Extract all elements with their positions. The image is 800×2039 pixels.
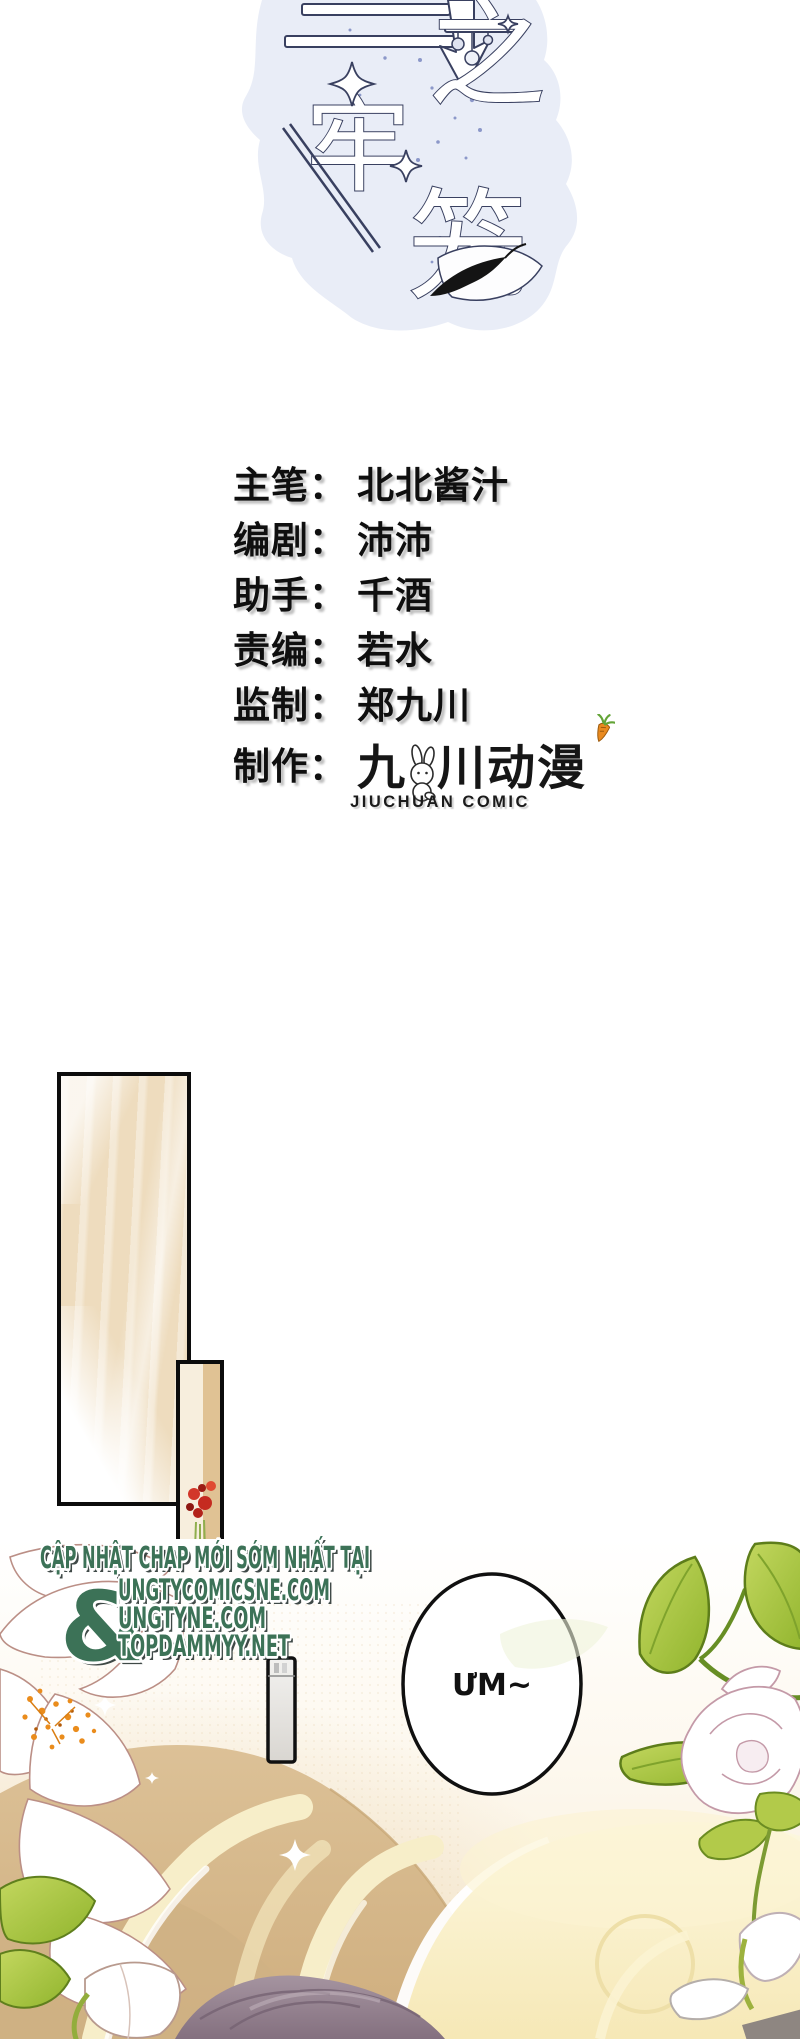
credit-row-assistant: 助手：千酒 <box>233 564 613 619</box>
credit-label: 编剧 <box>233 510 309 564</box>
credit-label: 主笔 <box>233 455 309 509</box>
credit-value: 北北酱汁 <box>357 455 509 509</box>
credit-colon: ： <box>309 620 347 674</box>
translator-watermark: CẬP NHẬT CHAP MỚI SỚM NHẤT TẠI & UNGTYCO… <box>14 1534 444 1684</box>
speech-bubble-text: ƯM~ <box>452 1668 532 1703</box>
comic-page: 之 牢 笼 主笔：北北酱汁 编剧：沛沛 助手：千酒 <box>0 0 800 2039</box>
studio-logo-latin: JIUCHUAN COMIC <box>330 793 550 812</box>
credit-colon: ： <box>309 510 347 564</box>
logo-cjk-mid: 川 <box>437 728 487 798</box>
credit-row-producer: 制作： 九 川 <box>233 731 613 795</box>
credit-label: 助手 <box>233 565 309 619</box>
credit-colon: ： <box>309 565 347 619</box>
credit-colon: ： <box>309 675 347 729</box>
credit-row-writer: 编剧：沛沛 <box>233 509 613 564</box>
credit-colon: ： <box>309 455 347 509</box>
credit-value: 郑九川 <box>357 675 471 729</box>
curtain-panel <box>57 1072 191 1506</box>
watermark-site-3: TOPDAMMYY.NET <box>118 1629 290 1663</box>
credit-row-supervisor: 监制：郑九川 <box>233 674 613 729</box>
credit-value: 若水 <box>357 620 433 674</box>
logo-cjk-right: 动漫 <box>487 728 587 798</box>
credit-value: 沛沛 <box>357 510 433 564</box>
credit-row-artist: 主笔：北北酱汁 <box>233 454 613 509</box>
credit-value: 千酒 <box>357 565 433 619</box>
title-calligraphy-art: 之 牢 笼 <box>0 0 800 340</box>
credits-block: 主笔：北北酱汁 编剧：沛沛 助手：千酒 责编：若水 监制：郑九川 制作： 九 <box>233 454 613 795</box>
logo-cjk-left: 九 <box>357 728 407 798</box>
credit-colon: ： <box>309 736 347 790</box>
carrot-icon <box>591 714 615 744</box>
red-flowers <box>186 1481 216 1518</box>
credit-label: 责编 <box>233 620 309 674</box>
watermark-heading: CẬP NHẬT CHAP MỚI SỚM NHẤT TẠI <box>40 1535 370 1576</box>
credit-label: 制作 <box>233 736 309 790</box>
credit-label: 监制 <box>233 675 309 729</box>
title-char-lao: 牢 <box>306 85 410 207</box>
credit-row-editor: 责编：若水 <box>233 619 613 674</box>
title-char-zhi: 之 <box>428 0 546 124</box>
studio-logo: 九 川 动漫 <box>357 728 613 798</box>
